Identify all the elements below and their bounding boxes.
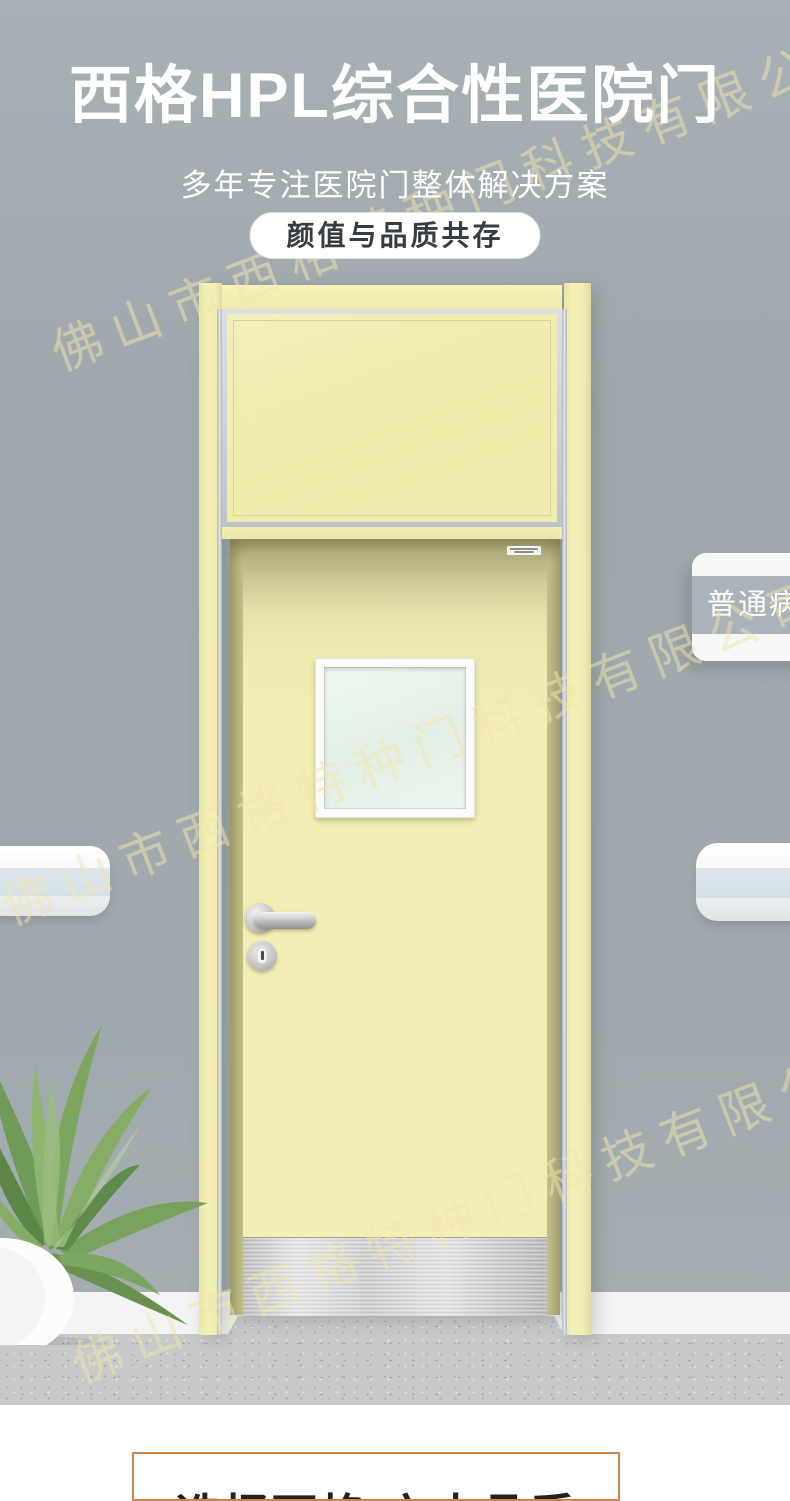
- ward-sign-label: 普通病房: [692, 576, 790, 634]
- promo-poster: 佛山市西格特种门科技有限公司 佛山市西格特种门科技有限公司 佛山市西格特种门科技…: [0, 0, 790, 1501]
- sticker-text-line: [514, 551, 534, 553]
- ward-sign-band: 普通病房: [692, 576, 790, 634]
- section-title: 选择西格·六大品质: [134, 1480, 618, 1501]
- ward-sign: 普通病房: [692, 553, 790, 661]
- transom-panel: [227, 314, 557, 522]
- section-title-box: 选择西格·六大品质: [132, 1452, 620, 1501]
- door-casing-right: [564, 283, 591, 1335]
- door-opening: [230, 539, 560, 1315]
- handrail-right-stripe: [696, 868, 790, 898]
- sticker-logo-mark: [510, 548, 513, 550]
- handrail-left: [0, 846, 110, 916]
- transom-frame: [222, 309, 562, 527]
- door-leaf: [243, 555, 547, 1315]
- frame-groove-right: [562, 309, 567, 1335]
- page-title: 西格HPL综合性医院门: [0, 62, 790, 131]
- subtitle: 多年专注医院门整体解决方案: [0, 160, 790, 205]
- door-window: [315, 658, 475, 818]
- hospital-door-unit: [198, 283, 592, 1335]
- kick-plate: [243, 1237, 547, 1316]
- plant-pot: [0, 1238, 74, 1345]
- door-handle-lever: [254, 912, 316, 929]
- lock-cylinder: [247, 941, 277, 971]
- quality-badge: 颜值与品质共存: [249, 212, 540, 259]
- frame-head-rail: [222, 285, 562, 310]
- handrail-left-stripe: [0, 868, 110, 896]
- window-glass: [324, 667, 466, 809]
- sticker-text-line: [510, 548, 538, 550]
- bottom-section: 选择西格·六大品质: [0, 1405, 790, 1501]
- frame-mid-rail: [222, 527, 562, 539]
- keyhole-icon: [257, 947, 267, 964]
- plant: [0, 995, 240, 1345]
- handrail-right: [696, 843, 790, 921]
